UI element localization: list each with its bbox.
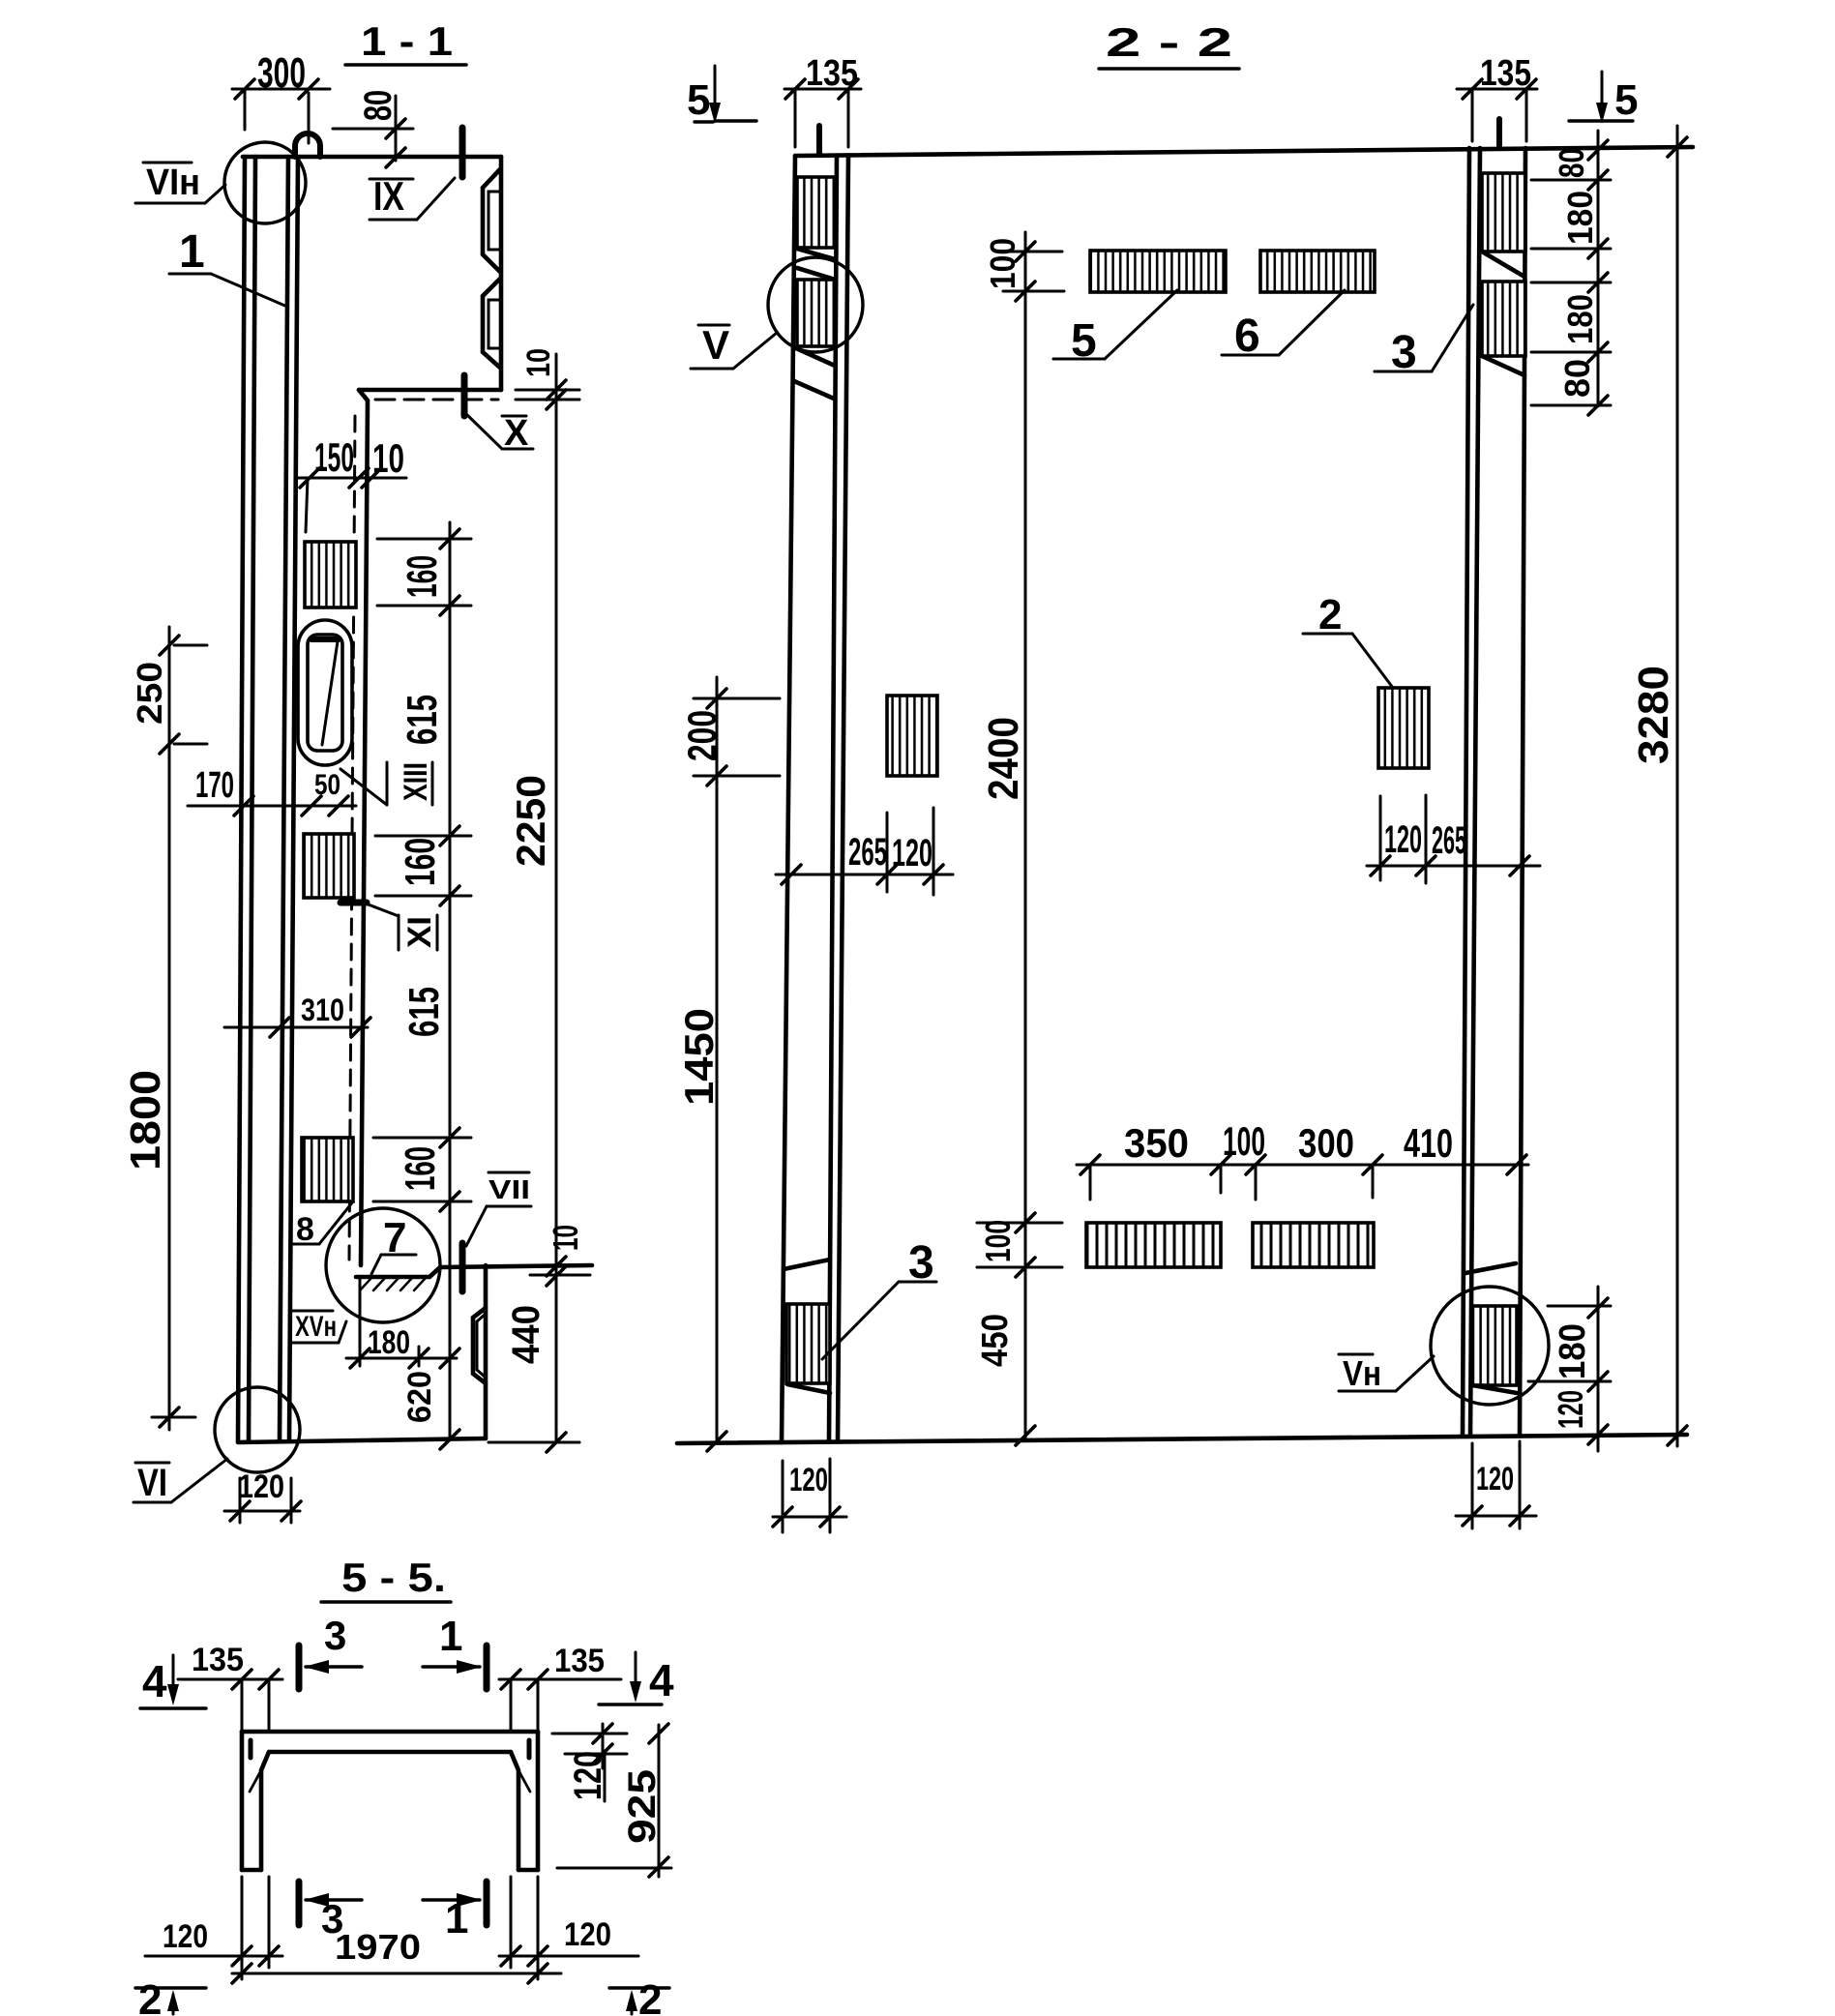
svg-text:V: V [702,322,729,368]
svg-text:1 - 1: 1 - 1 [361,18,453,64]
svg-text:1800: 1800 [122,1070,169,1171]
svg-text:615: 615 [399,695,446,745]
svg-text:80: 80 [1552,148,1591,178]
svg-text:120: 120 [163,1918,208,1955]
svg-text:10: 10 [520,348,557,377]
svg-text:615: 615 [400,987,448,1037]
svg-text:120: 120 [789,1462,828,1498]
svg-text:180: 180 [1553,1323,1593,1379]
svg-text:XI: XI [401,916,438,948]
svg-text:180: 180 [1560,294,1600,344]
svg-text:2250: 2250 [508,775,553,867]
svg-text:XVн: XVн [295,1311,337,1343]
svg-text:1: 1 [439,1613,462,1660]
svg-text:160: 160 [397,838,444,886]
svg-text:80: 80 [1557,359,1597,398]
svg-text:100: 100 [978,1220,1018,1262]
svg-text:2: 2 [1318,591,1342,638]
svg-text:80: 80 [357,90,400,121]
svg-text:10: 10 [546,1225,585,1251]
svg-text:5: 5 [687,76,710,124]
svg-text:120: 120 [564,1916,611,1953]
svg-text:120: 120 [567,1751,609,1800]
svg-text:620: 620 [401,1371,438,1423]
svg-text:5 - 5.: 5 - 5. [341,1555,446,1600]
svg-text:3: 3 [324,1613,346,1658]
svg-text:180: 180 [1560,191,1600,245]
svg-text:450: 450 [975,1314,1016,1367]
svg-text:1450: 1450 [676,1008,722,1106]
svg-text:300: 300 [1298,1120,1354,1166]
svg-text:Vн: Vн [1343,1353,1381,1393]
svg-text:135: 135 [554,1643,605,1679]
svg-text:2: 2 [138,1976,162,2016]
svg-text:150: 150 [314,434,354,480]
svg-text:120: 120 [238,1468,284,1505]
svg-text:VI: VI [137,1462,167,1504]
svg-text:2 - 2: 2 - 2 [1106,19,1232,65]
svg-text:VIн: VIн [146,163,200,203]
svg-text:160: 160 [399,555,446,598]
svg-text:160: 160 [397,1146,444,1191]
svg-text:310: 310 [301,993,344,1027]
svg-text:170: 170 [195,765,234,806]
svg-text:250: 250 [130,662,169,725]
svg-text:265: 265 [848,831,887,874]
svg-text:1: 1 [179,226,205,278]
svg-text:120: 120 [892,832,932,875]
svg-text:4: 4 [142,1656,167,1706]
svg-text:200: 200 [679,710,725,761]
svg-text:VII: VII [488,1174,530,1204]
svg-text:440: 440 [505,1305,548,1364]
svg-text:4: 4 [649,1655,674,1705]
svg-text:135: 135 [192,1642,244,1678]
svg-text:100: 100 [983,238,1022,289]
svg-text:180: 180 [368,1324,410,1361]
svg-text:120: 120 [1551,1390,1590,1429]
svg-text:XIII: XIII [398,762,434,801]
svg-text:925: 925 [621,1769,664,1844]
svg-text:8: 8 [296,1211,314,1248]
svg-text:5: 5 [1614,76,1638,124]
svg-text:3280: 3280 [1630,666,1677,764]
svg-text:2: 2 [638,1976,662,2016]
svg-text:120: 120 [1476,1461,1514,1497]
svg-text:1970: 1970 [335,1927,421,1967]
svg-text:50: 50 [314,769,340,801]
svg-text:350: 350 [1124,1120,1189,1166]
svg-text:2400: 2400 [980,717,1027,800]
svg-text:410: 410 [1404,1120,1453,1166]
